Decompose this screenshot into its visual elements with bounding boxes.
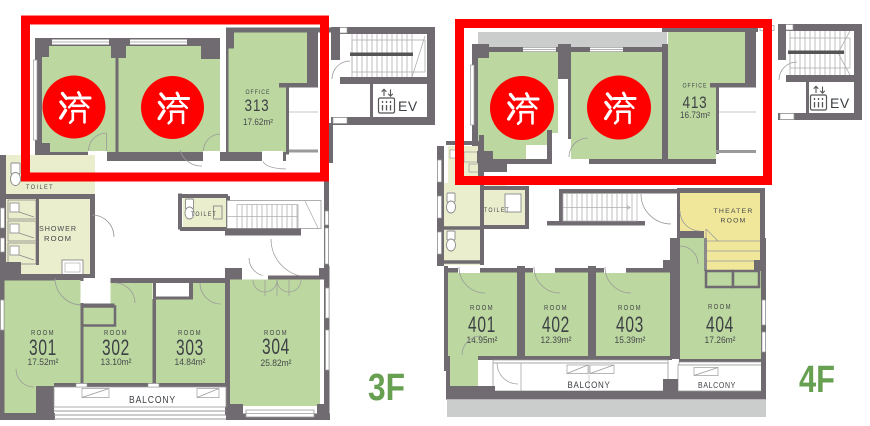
svg-text:THEATER: THEATER (714, 208, 754, 215)
svg-text:BALCONY: BALCONY (568, 380, 611, 391)
svg-text:BALCONY: BALCONY (129, 395, 176, 406)
svg-text:ROOM: ROOM (708, 304, 732, 311)
svg-text:17.62m²: 17.62m² (243, 117, 273, 127)
svg-text:SHOWER: SHOWER (39, 224, 77, 233)
svg-text:16.73m²: 16.73m² (680, 110, 710, 120)
svg-text:404: 404 (706, 312, 734, 337)
svg-text:ROOM: ROOM (618, 305, 642, 312)
svg-text:ROOM: ROOM (721, 218, 747, 225)
svg-text:OFFICE: OFFICE (246, 89, 271, 96)
svg-text:403: 403 (616, 312, 644, 337)
svg-text:TOILET: TOILET (191, 212, 217, 218)
svg-text:25.82m²: 25.82m² (261, 358, 292, 369)
svg-text:12.39m²: 12.39m² (541, 335, 572, 346)
svg-text:4F: 4F (799, 359, 835, 401)
svg-text:13.10m²: 13.10m² (101, 357, 132, 368)
svg-text:ROOM: ROOM (544, 305, 568, 312)
svg-text:17.52m²: 17.52m² (28, 357, 59, 368)
svg-text:TOILET: TOILET (26, 184, 54, 191)
svg-text:EV: EV (830, 95, 850, 111)
svg-text:304: 304 (262, 334, 290, 359)
svg-text:17.26m²: 17.26m² (705, 335, 736, 346)
svg-text:ROOM: ROOM (44, 234, 72, 243)
svg-text:3F: 3F (368, 367, 405, 409)
svg-text:BALCONY: BALCONY (698, 380, 736, 390)
svg-text:EV: EV (398, 98, 418, 114)
svg-text:14.84m²: 14.84m² (175, 357, 206, 368)
svg-text:313: 313 (245, 96, 270, 115)
svg-text:ROOM: ROOM (470, 305, 494, 312)
svg-text:15.39m²: 15.39m² (615, 335, 646, 346)
svg-text:14.95m²: 14.95m² (467, 335, 498, 346)
svg-text:401: 401 (468, 312, 496, 337)
svg-text:OFFICE: OFFICE (683, 83, 708, 90)
svg-text:TOILET: TOILET (484, 208, 510, 214)
svg-text:402: 402 (542, 312, 570, 337)
